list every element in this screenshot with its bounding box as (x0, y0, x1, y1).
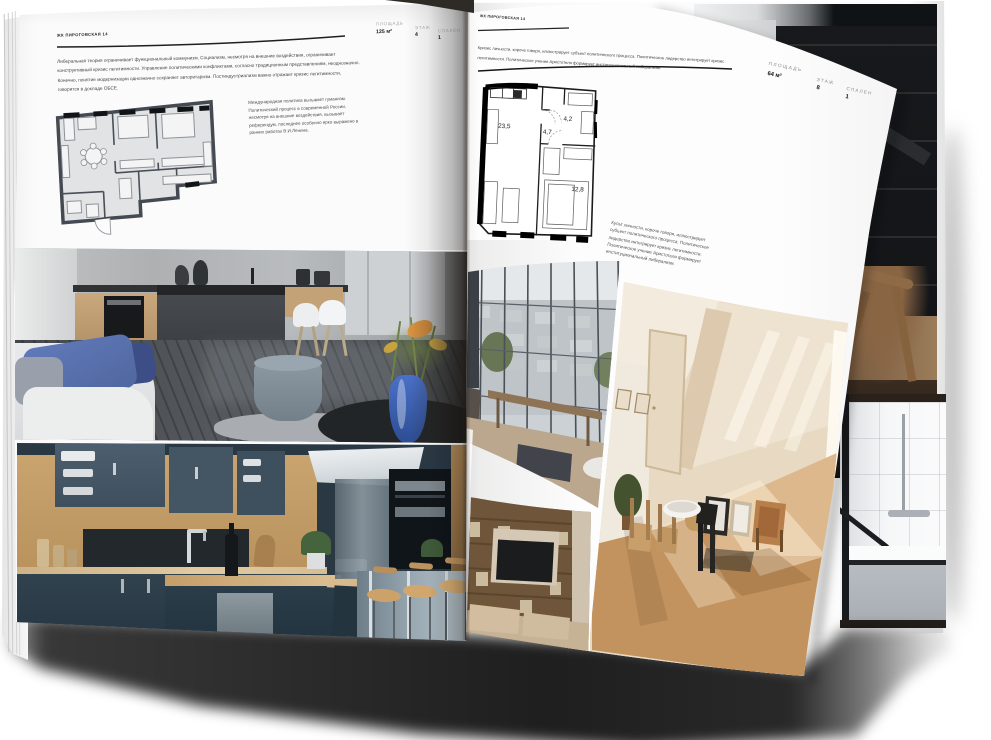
svg-text:12,8: 12,8 (571, 186, 584, 194)
svg-text:4,2: 4,2 (563, 116, 573, 123)
svg-text:23,5: 23,5 (498, 123, 511, 131)
svg-text:4,7: 4,7 (543, 129, 553, 136)
